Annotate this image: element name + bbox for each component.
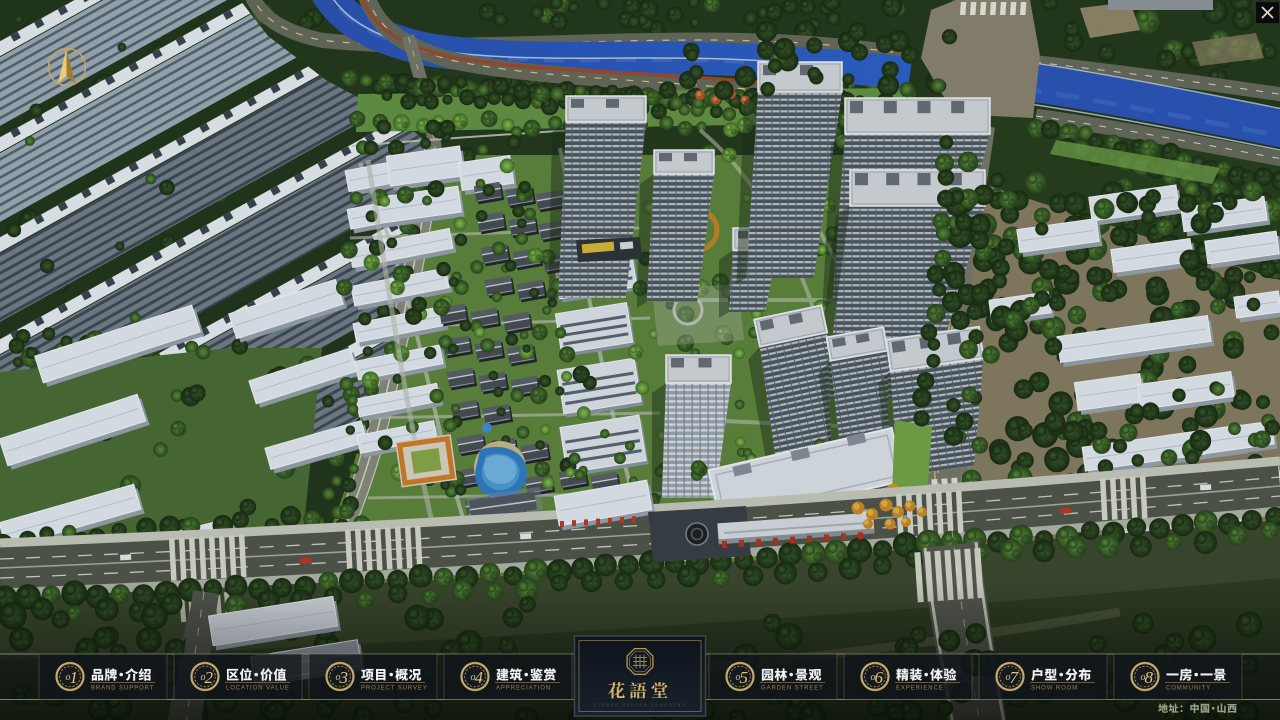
svg-text:SHOW ROOM: SHOW ROOM [1031, 686, 1078, 692]
svg-text:COMMUNITY: COMMUNITY [1166, 686, 1211, 692]
svg-text:GARDEN STREET: GARDEN STREET [761, 686, 824, 692]
svg-text:FLOWER GARDEN COMPOUND: FLOWER GARDEN COMPOUND [594, 703, 686, 707]
svg-text:PROJECT SURVEY: PROJECT SURVEY [361, 686, 428, 692]
svg-text:EXPERIENCE: EXPERIENCE [896, 686, 944, 692]
svg-text:6: 6 [875, 668, 884, 687]
svg-text:4: 4 [475, 668, 484, 687]
svg-text:1: 1 [70, 668, 79, 687]
svg-text:8: 8 [1145, 668, 1154, 687]
svg-text:APPRECIATION: APPRECIATION [496, 686, 551, 692]
svg-text:5: 5 [740, 668, 749, 687]
svg-text:3: 3 [339, 668, 349, 687]
svg-text:BRAND SUPPORT: BRAND SUPPORT [91, 686, 154, 692]
svg-text:LOCATION VALUE: LOCATION VALUE [226, 686, 290, 692]
svg-text:2: 2 [205, 668, 214, 687]
